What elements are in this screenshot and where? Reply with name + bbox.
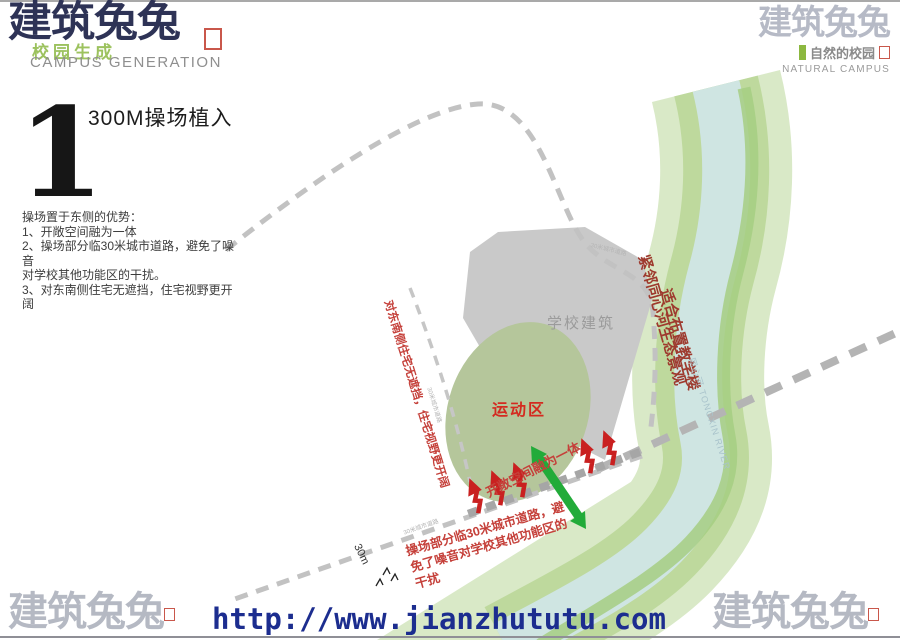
website-url-link[interactable]: http://www.jianzhututu.com <box>212 602 666 636</box>
seal-icon <box>868 608 879 621</box>
section-title: 300M操场植入 <box>88 102 233 132</box>
note-line: 1、开敞空间融为一体 <box>22 225 244 240</box>
footer-logo-left: 建筑兔兔 <box>8 592 175 632</box>
school-building-label: 学校建筑 <box>547 312 615 333</box>
brand-right-tagline: 自然的校园 <box>810 43 875 62</box>
footer-logo-left-text: 建筑兔兔 <box>8 590 164 634</box>
brand-left: 校园生成 建筑兔兔 CAMPUS GENERATION <box>8 2 248 46</box>
note-line: 3、对东南侧住宅无遮挡，住宅视野更开阔 <box>22 283 244 312</box>
note-line: 对学校其他功能区的干扰。 <box>22 268 244 283</box>
bottom-border <box>0 636 900 638</box>
scale-figures-icon <box>376 568 398 586</box>
note-line: 2、操场部分临30米城市道路，避免了噪音 <box>22 239 244 268</box>
seal-icon <box>879 46 890 59</box>
footer-logo-right-text: 建筑兔兔 <box>712 590 868 634</box>
advantage-notes: 操场置于东侧的优势： 1、开敞空间融为一体 2、操场部分临30米城市道路，避免了… <box>22 210 244 312</box>
brand-right: 建筑兔兔 自然的校园 NATURAL CAMPUS <box>758 6 890 75</box>
brand-right-subtitle: NATURAL CAMPUS <box>758 64 890 75</box>
seal-icon <box>164 608 175 621</box>
brand-right-logo: 建筑兔兔 <box>758 6 890 40</box>
brand-bar-icon <box>799 45 806 60</box>
sports-area-label: 运动区 <box>492 396 546 420</box>
slide-page: 校园生成 建筑兔兔 CAMPUS GENERATION 建筑兔兔 自然的校园 N… <box>0 0 900 640</box>
brand-left-logo: 建筑兔兔 <box>8 2 248 44</box>
footer-logo-right: 建筑兔兔 <box>712 592 879 632</box>
brand-left-subtitle: CAMPUS GENERATION <box>30 54 222 71</box>
note-line: 操场置于东侧的优势： <box>22 210 244 225</box>
